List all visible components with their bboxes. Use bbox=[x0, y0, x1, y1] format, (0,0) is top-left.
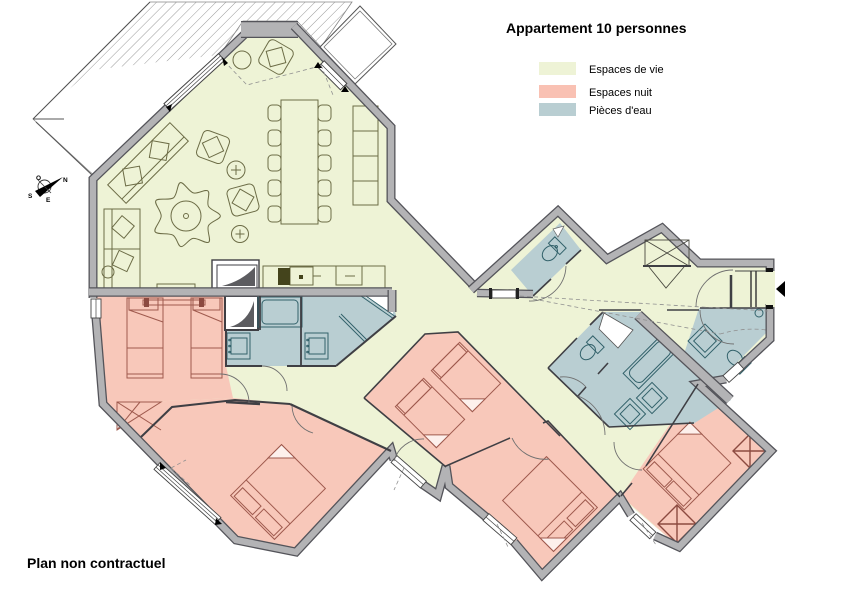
svg-text:N: N bbox=[63, 177, 68, 184]
svg-text:Espaces de vie: Espaces de vie bbox=[589, 64, 664, 76]
svg-text:Appartement 10 personnes: Appartement 10 personnes bbox=[506, 20, 687, 36]
svg-text:Pièces d'eau: Pièces d'eau bbox=[589, 105, 652, 117]
svg-text:Espaces nuit: Espaces nuit bbox=[589, 87, 652, 99]
svg-text:Plan non contractuel: Plan non contractuel bbox=[27, 555, 165, 571]
svg-text:S: S bbox=[28, 193, 33, 200]
svg-text:O: O bbox=[36, 175, 41, 182]
svg-text:E: E bbox=[46, 197, 51, 204]
